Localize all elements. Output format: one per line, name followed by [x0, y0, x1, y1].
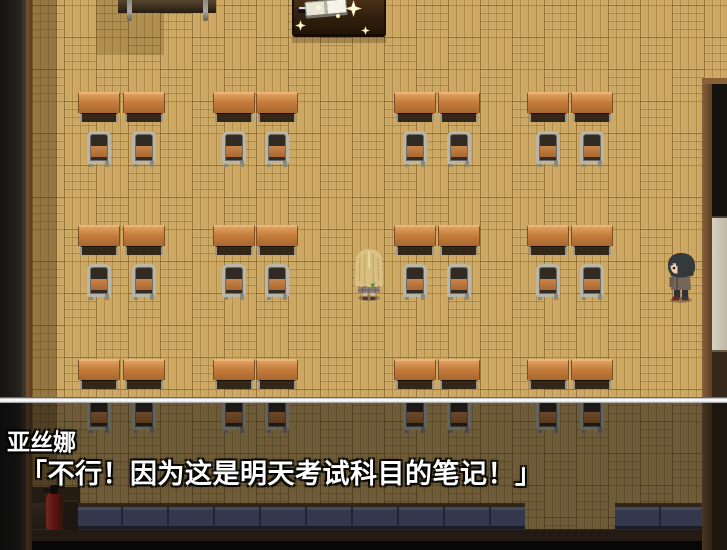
student-desk [213, 225, 255, 255]
student-chair [222, 131, 246, 167]
blackboard-hook-icon [127, 0, 132, 21]
student-chair [580, 264, 604, 300]
desk-front [80, 380, 118, 389]
chair-seat [269, 279, 285, 290]
desk-top [256, 92, 298, 113]
student-desk [571, 359, 613, 389]
student-chair [447, 131, 471, 167]
student-desk [527, 359, 569, 389]
chair-seat [136, 146, 152, 157]
student-desk [438, 359, 480, 389]
student-chair [87, 131, 111, 167]
desk-top [394, 92, 436, 113]
student-desk [438, 92, 480, 122]
student-chair [87, 264, 111, 300]
desk-top [527, 225, 569, 246]
student-chair [536, 131, 560, 167]
desk-top [438, 225, 480, 246]
chair-seat [451, 146, 467, 157]
chair-seat [136, 279, 152, 290]
chair-seat [226, 146, 242, 157]
sparkle-icon [336, 14, 340, 18]
desk-front [529, 246, 567, 255]
student-chair [222, 264, 246, 300]
student-desk [78, 92, 120, 122]
student-desk [256, 225, 298, 255]
student-desk [123, 92, 165, 122]
chair-seat [540, 146, 556, 157]
desk-front [529, 113, 567, 122]
student-chair [403, 131, 427, 167]
student-desk [527, 92, 569, 122]
desk-top [123, 359, 165, 380]
desk-front [440, 113, 478, 122]
student-desk [123, 225, 165, 255]
desk-top [571, 92, 613, 113]
desk-front [573, 113, 611, 122]
desk-front [125, 113, 163, 122]
student-chair [580, 131, 604, 167]
desk-front [573, 380, 611, 389]
student-desk [213, 92, 255, 122]
chair-seat [226, 279, 242, 290]
student-desk [394, 359, 436, 389]
student-desk [394, 92, 436, 122]
desk-top [527, 92, 569, 113]
desk-top [394, 225, 436, 246]
teacher-desk-shadow [292, 37, 386, 43]
kirito-sprite[interactable] [664, 252, 700, 303]
desk-top [256, 359, 298, 380]
desk-front [258, 246, 296, 255]
student-desk [256, 359, 298, 389]
desk-front [125, 380, 163, 389]
desk-top [527, 359, 569, 380]
student-chair [536, 264, 560, 300]
chair-seat [584, 279, 600, 290]
desk-front [125, 246, 163, 255]
student-chair [447, 264, 471, 300]
chair-seat [269, 146, 285, 157]
desk-top [78, 359, 120, 380]
student-desk [527, 225, 569, 255]
student-chair [403, 264, 427, 300]
desk-top [571, 359, 613, 380]
asuna-sprite[interactable] [351, 248, 387, 301]
student-desk [213, 359, 255, 389]
desk-top [78, 225, 120, 246]
blackboard-edge [118, 0, 216, 13]
desk-front [440, 380, 478, 389]
student-chair [132, 264, 156, 300]
desk-front [529, 380, 567, 389]
desk-front [258, 113, 296, 122]
desk-front [396, 113, 434, 122]
student-desk [78, 225, 120, 255]
desk-top [438, 359, 480, 380]
desk-front [215, 113, 253, 122]
message-window-border [0, 397, 727, 403]
student-chair [265, 264, 289, 300]
chair-seat [540, 279, 556, 290]
desk-top [213, 359, 255, 380]
student-desk [571, 225, 613, 255]
desk-top [256, 225, 298, 246]
desk-front [80, 113, 118, 122]
desk-front [215, 246, 253, 255]
desk-top [78, 92, 120, 113]
chair-seat [407, 146, 423, 157]
right-wall-opening [712, 84, 727, 216]
desk-front [396, 246, 434, 255]
desk-top [213, 92, 255, 113]
desk-top [123, 92, 165, 113]
student-desk [78, 359, 120, 389]
desk-front [258, 380, 296, 389]
student-chair [132, 131, 156, 167]
chair-seat [407, 279, 423, 290]
chair-seat [451, 279, 467, 290]
dialogue-text: 「不行！因为这是明天考试科目的笔记！」 [20, 452, 543, 491]
side-door-panel [712, 216, 727, 352]
game-screen[interactable]: 亚丝娜 「不行！因为这是明天考试科目的笔记！」 [0, 0, 727, 550]
desk-front [80, 246, 118, 255]
blackboard-hook-icon [203, 0, 208, 21]
student-desk [123, 359, 165, 389]
student-chair [265, 131, 289, 167]
desk-top [571, 225, 613, 246]
student-desk [256, 92, 298, 122]
student-desk [394, 225, 436, 255]
desk-top [213, 225, 255, 246]
desk-front [573, 246, 611, 255]
desk-top [394, 359, 436, 380]
desk-top [123, 225, 165, 246]
desk-front [215, 380, 253, 389]
chair-seat [91, 279, 107, 290]
chair-seat [91, 146, 107, 157]
desk-front [396, 380, 434, 389]
student-desk [438, 225, 480, 255]
desk-top [438, 92, 480, 113]
chair-seat [584, 146, 600, 157]
student-desk [571, 92, 613, 122]
desk-front [440, 246, 478, 255]
